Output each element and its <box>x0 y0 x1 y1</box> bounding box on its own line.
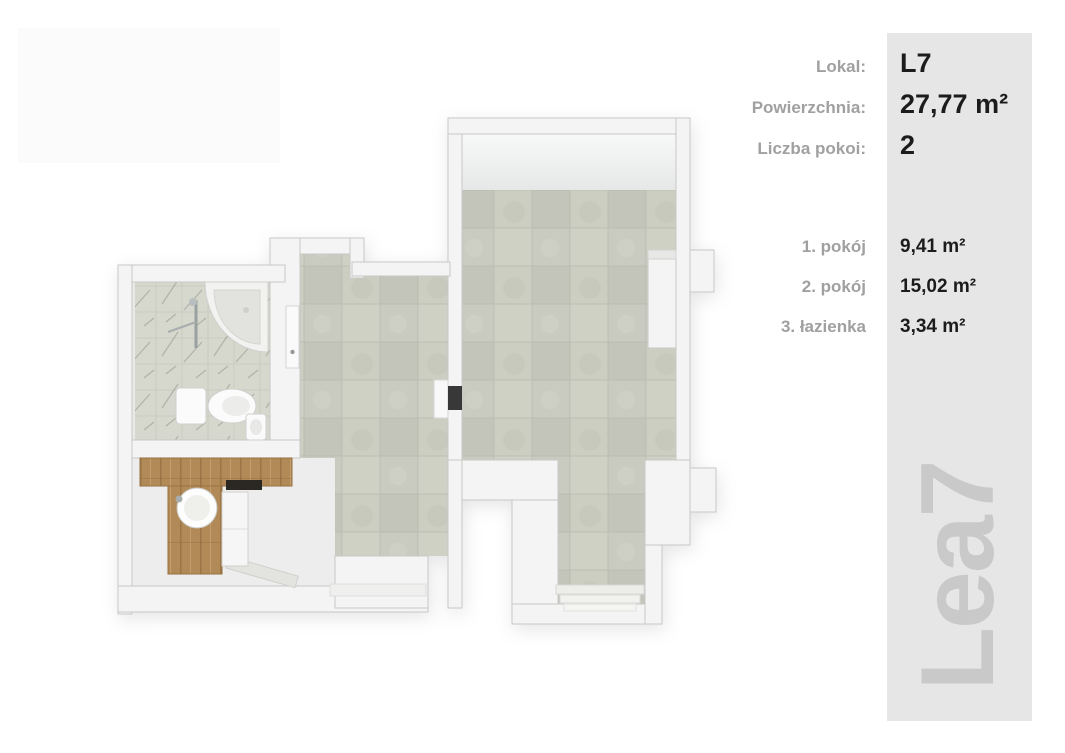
corridor-right-wall <box>645 545 662 624</box>
left-outer-wall <box>118 265 132 614</box>
lokal-value: L7 <box>887 48 1032 78</box>
hall-top-wall-b <box>352 262 450 276</box>
info-row-liczba-pokoi: Liczba pokoi: 2 <box>540 130 1032 160</box>
shower-drain <box>243 307 249 313</box>
shower-head <box>189 298 197 306</box>
room-3-area: 3,34 m² <box>887 314 1032 340</box>
room-1-area: 9,41 m² <box>887 234 1032 260</box>
liczba-pokoi-label: Liczba pokoi: <box>540 139 887 159</box>
bathroom-door-handle <box>290 350 294 354</box>
room-2-label: 2. pokój <box>540 277 887 297</box>
door-step-2 <box>560 595 640 603</box>
vessel-sink-basin <box>184 495 210 521</box>
room2-bottom-wall <box>448 460 558 500</box>
room-3-label: 3. łazienka <box>540 317 887 337</box>
room1-threshold <box>330 584 426 596</box>
toilet-tank <box>176 388 206 424</box>
bathroom-top-wall <box>118 265 285 282</box>
vanity-counter <box>140 458 292 486</box>
room-row-3: 3. łazienka 3,34 m² <box>540 314 1032 340</box>
bathroom-bottom-wall <box>132 440 300 458</box>
vanity-dark-slot <box>226 480 262 490</box>
room-1-label: 1. pokój <box>540 237 887 257</box>
bathroom-door-leaf <box>286 306 299 368</box>
watermark: Lea7 <box>893 416 1023 736</box>
room-row-2: 2. pokój 15,02 m² <box>540 274 1032 300</box>
hall-right-wall-lower <box>448 460 462 608</box>
entrance-door <box>556 585 644 611</box>
hall-bottom-wall <box>335 556 428 608</box>
room-2-area: 15,02 m² <box>887 274 1032 300</box>
toilet-bowl-inner <box>222 396 250 416</box>
door-step-3 <box>564 604 636 611</box>
info-row-lokal: Lokal: L7 <box>540 48 1032 78</box>
info-row-powierzchnia: Powierzchnia: 27,77 m² <box>540 89 1032 119</box>
liczba-pokoi-value: 2 <box>887 130 1032 160</box>
window-bump-bottom <box>690 468 716 512</box>
lokal-label: Lokal: <box>540 57 887 77</box>
vessel-sink-faucet <box>176 496 183 503</box>
room2-door-gap <box>448 386 462 410</box>
corridor-left-wall <box>512 500 558 612</box>
door-step-1 <box>556 585 644 594</box>
room2-door-leaf <box>434 380 448 418</box>
floorplan-card: Lea7 Lokal: L7 Powierzchnia: 27,77 m² Li… <box>0 0 1065 753</box>
room-row-1: 1. pokój 9,41 m² <box>540 234 1032 260</box>
room2-left-wall <box>448 134 462 460</box>
powierzchnia-value: 27,77 m² <box>887 89 1032 119</box>
bathroom-small-sink-basin <box>250 419 262 435</box>
corridor-right-block <box>645 460 690 545</box>
powierzchnia-label: Powierzchnia: <box>540 98 887 118</box>
